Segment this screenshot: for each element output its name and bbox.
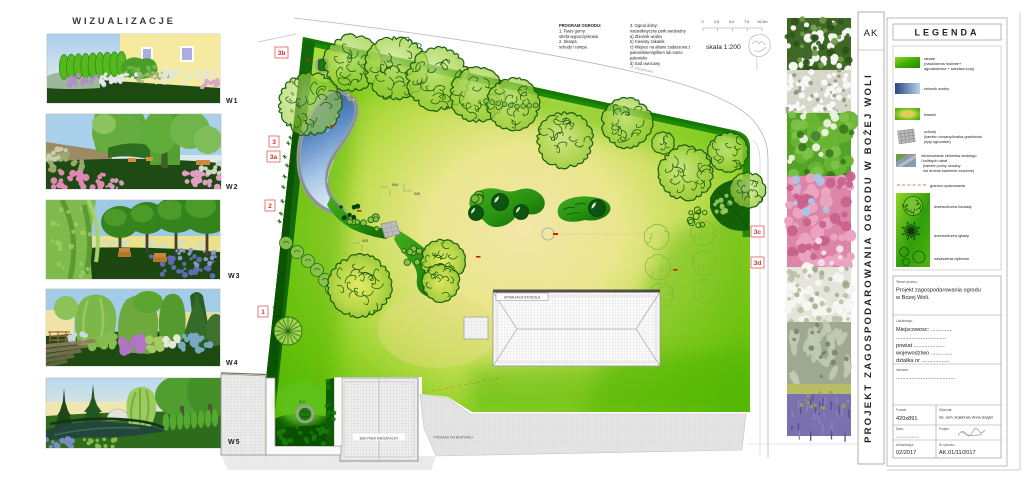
svg-text:3: 3 — [272, 139, 276, 146]
svg-text:(kamien polny ciosany: (kamien polny ciosany — [923, 164, 961, 168]
svg-text:granica opracowania: granica opracowania — [930, 184, 966, 188]
svg-text:W3: W3 — [228, 273, 241, 280]
svg-text:10,0m: 10,0m — [757, 20, 768, 24]
svg-text:w Bozej Woli.: w Bozej Woli. — [895, 295, 930, 301]
svg-text:PROGRAM OGRODU:: PROGRAM OGRODU: — [559, 23, 601, 28]
svg-text:schody: schody — [924, 130, 936, 134]
svg-text:Lokalizacja:: Lokalizacja: — [896, 319, 913, 323]
svg-text:Nr rysunku:: Nr rysunku: — [939, 443, 955, 447]
svg-text:1. Taras gorny:: 1. Taras gorny: — [559, 28, 586, 33]
svg-text:7,5: 7,5 — [744, 20, 749, 24]
svg-text:2. Skarpa:: 2. Skarpa: — [559, 39, 578, 44]
svg-text:plyty ogrodowe): plyty ogrodowe) — [924, 140, 952, 144]
svg-text:..............................: ................................ — [896, 335, 946, 341]
svg-text:d) Sad owocowy: d) Sad owocowy — [630, 61, 661, 66]
svg-text:3. Ogrod dolny:: 3. Ogrod dolny: — [630, 23, 658, 28]
svg-text:Podpis:: Podpis: — [939, 427, 950, 431]
svg-text:Projekt zagospodarowania ogrod: Projekt zagospodarowania ogrodu — [896, 288, 981, 294]
svg-text:naturalistyczny park swobodny: naturalistyczny park swobodny — [630, 28, 687, 33]
svg-text:3b: 3b — [278, 50, 286, 57]
svg-text:nasadzenia bylinowe: nasadzenia bylinowe — [934, 257, 969, 261]
svg-text:3c: 3c — [754, 229, 762, 236]
svg-text:trawnik: trawnik — [924, 113, 936, 117]
svg-text:drzewo/krzew lisciasty: drzewo/krzew lisciasty — [934, 205, 972, 209]
svg-text:W3: W3 — [362, 238, 369, 243]
svg-text:02/2017: 02/2017 — [896, 450, 916, 456]
svg-text:zbiornik wodny: zbiornik wodny — [924, 87, 949, 91]
svg-text:W5: W5 — [228, 439, 241, 446]
svg-text:i kolistych rabat: i kolistych rabat — [921, 159, 948, 163]
svg-text:b) Cienisty zakatek: b) Cienisty zakatek — [630, 39, 666, 44]
svg-text:paleniskiem/grillem lub samo: paleniskiem/grillem lub samo — [630, 50, 683, 55]
svg-text:AK: AK — [864, 28, 879, 39]
svg-text:strefa wypoczynkowa: strefa wypoczynkowa — [559, 34, 599, 39]
svg-text:wojewodztwo ..............: wojewodztwo .............. — [895, 351, 953, 357]
svg-text:Aktualizacja:: Aktualizacja: — [896, 443, 914, 447]
svg-text:Miejscowosc: ..............: Miejscowosc: .............. — [896, 327, 953, 333]
svg-text:AK.01/11/2017: AK.01/11/2017 — [939, 450, 976, 456]
svg-text:Format:: Format: — [896, 408, 907, 412]
svg-text:LEGENDA: LEGENDA — [914, 28, 979, 38]
svg-text:1: 1 — [261, 309, 265, 316]
svg-text:Inwestor:: Inwestor: — [896, 368, 909, 372]
svg-text:dzialka nr ..................: dzialka nr .................. — [896, 358, 950, 364]
svg-text:ISTNIEJACA STODOLA: ISTNIEJACA STODOLA — [504, 296, 541, 300]
svg-text:W4: W4 — [392, 182, 399, 187]
svg-text:WIZUALIZACJE: WIZUALIZACJE — [72, 15, 175, 26]
svg-text:420x891: 420x891 — [896, 416, 917, 422]
svg-text:W1: W1 — [226, 98, 239, 105]
svg-text:lub drobne kamienie ozdobne): lub drobne kamienie ozdobne) — [923, 169, 975, 173]
svg-text:W2: W2 — [226, 184, 239, 191]
svg-text:W5: W5 — [414, 191, 421, 196]
svg-text:W 2: W 2 — [299, 400, 305, 404]
svg-text:...............: ............... — [896, 434, 920, 440]
svg-text:PROJEKT ZAGOSPODAROWANIA OGROD: PROJEKT ZAGOSPODAROWANIA OGRODU W BOŻEJ … — [863, 73, 874, 443]
svg-text:Data:: Data: — [896, 427, 904, 431]
svg-text:agrowloknina + warstwa kory): agrowloknina + warstwa kory) — [924, 67, 975, 71]
svg-text:(nasadzenia roslinne+: (nasadzenia roslinne+ — [924, 62, 962, 66]
svg-text:W4: W4 — [226, 360, 239, 367]
svg-text:2: 2 — [268, 203, 272, 210]
svg-text:schody i rampa: schody i rampa — [559, 45, 587, 50]
svg-text:(kamien ciosany/kostka granito: (kamien ciosany/kostka granitowa/ — [924, 135, 983, 139]
svg-text:3a: 3a — [270, 154, 278, 161]
svg-text:Temat rysunku:: Temat rysunku: — [896, 280, 918, 284]
svg-text:0: 0 — [702, 20, 704, 24]
svg-text:Wykonal:: Wykonal: — [939, 408, 952, 412]
svg-text:2,5: 2,5 — [714, 20, 719, 24]
svg-text:..............................: ...................................... — [896, 375, 956, 381]
svg-text:c) Miejsce na altane zadaszo: c) Miejsce na altane zadaszona z — [630, 45, 691, 50]
svg-text:palenisko: palenisko — [630, 55, 648, 60]
svg-text:3d: 3d — [754, 260, 762, 267]
svg-text:inz. arch. krajobrazu Anna Gry: inz. arch. krajobrazu Anna Grygiel — [939, 416, 993, 420]
svg-text:BUDYNEK MIESZKALNY: BUDYNEK MIESZKALNY — [360, 437, 400, 441]
svg-text:5,0: 5,0 — [729, 20, 734, 24]
svg-text:PODJAZD DO BUDYNKU: PODJAZD DO BUDYNKU — [433, 436, 473, 440]
svg-text:drzewo/krzew iglasty: drzewo/krzew iglasty — [934, 234, 969, 238]
svg-text:rabata: rabata — [924, 57, 936, 61]
svg-text:a) Zbiornik wodny: a) Zbiornik wodny — [630, 34, 663, 39]
svg-text:obramowanie zbiornika wodnego: obramowanie zbiornika wodnego — [921, 154, 977, 158]
svg-text:skala 1:200: skala 1:200 — [706, 44, 741, 51]
svg-text:powiat ....................: powiat .................... — [896, 343, 945, 349]
